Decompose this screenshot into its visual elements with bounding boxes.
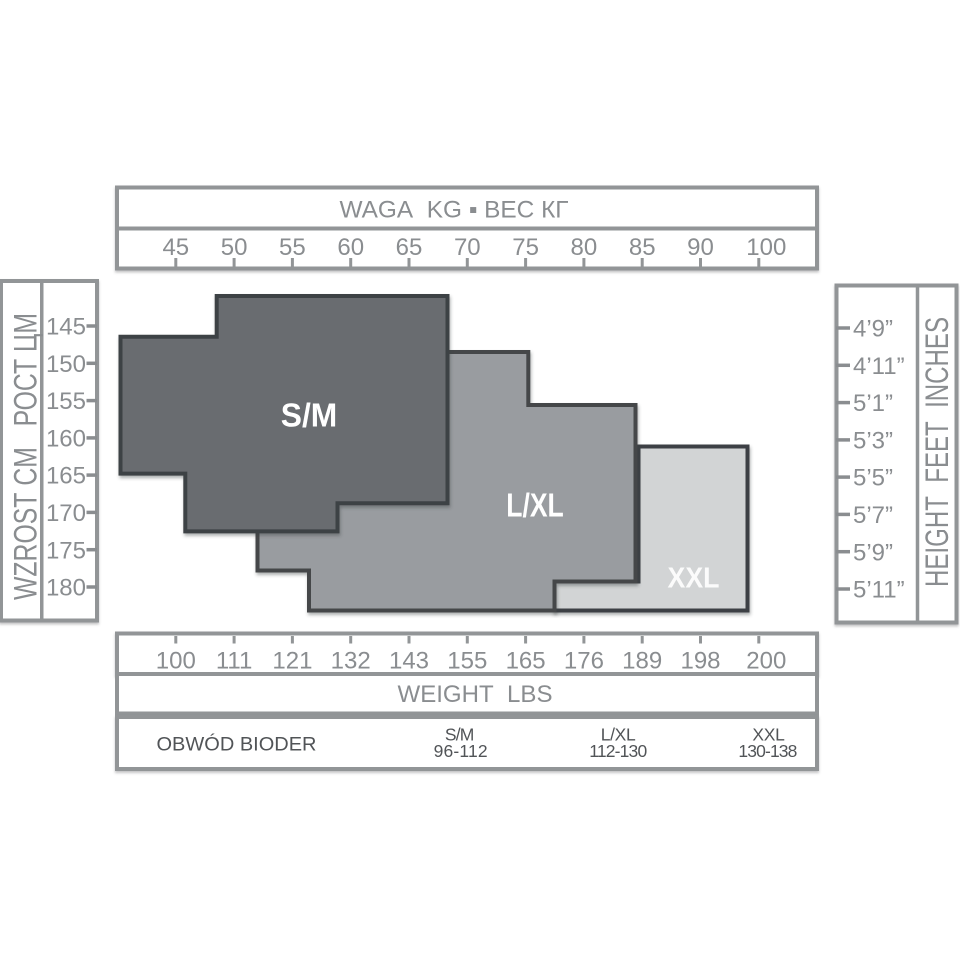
svg-text:5’11”: 5’11” bbox=[853, 577, 905, 604]
svg-text:65: 65 bbox=[396, 234, 423, 261]
svg-text:90: 90 bbox=[687, 234, 714, 261]
svg-text:50: 50 bbox=[221, 234, 248, 261]
svg-text:L/XL: L/XL bbox=[506, 486, 564, 523]
svg-text:155: 155 bbox=[447, 648, 487, 675]
svg-text:70: 70 bbox=[454, 234, 481, 261]
svg-text:60: 60 bbox=[337, 234, 364, 261]
svg-text:165: 165 bbox=[506, 648, 546, 675]
svg-text:112-130: 112-130 bbox=[589, 741, 647, 761]
svg-text:132: 132 bbox=[331, 648, 371, 675]
svg-text:111: 111 bbox=[216, 648, 252, 675]
svg-text:100: 100 bbox=[156, 648, 196, 675]
svg-text:189: 189 bbox=[622, 648, 662, 675]
svg-text:S/M: S/M bbox=[281, 397, 338, 434]
svg-text:5’1”: 5’1” bbox=[853, 390, 893, 417]
svg-text:4’9”: 4’9” bbox=[853, 316, 893, 343]
svg-text:OBWÓD BIODER: OBWÓD BIODER bbox=[157, 732, 317, 755]
svg-text:198: 198 bbox=[680, 648, 720, 675]
svg-text:100: 100 bbox=[746, 234, 786, 261]
svg-text:5’9”: 5’9” bbox=[853, 539, 893, 566]
svg-text:150: 150 bbox=[46, 351, 86, 378]
svg-text:160: 160 bbox=[46, 426, 86, 453]
svg-text:55: 55 bbox=[279, 234, 306, 261]
svg-text:WAGA KG ▪ ВЕС КГ: WAGA KG ▪ ВЕС КГ bbox=[340, 196, 569, 223]
svg-text:143: 143 bbox=[389, 648, 429, 675]
svg-text:200: 200 bbox=[746, 648, 786, 675]
svg-text:75: 75 bbox=[512, 234, 539, 261]
svg-text:155: 155 bbox=[46, 388, 86, 415]
svg-text:5’5”: 5’5” bbox=[853, 465, 893, 492]
svg-text:85: 85 bbox=[629, 234, 656, 261]
svg-text:180: 180 bbox=[46, 575, 86, 602]
svg-text:170: 170 bbox=[46, 500, 86, 527]
svg-text:176: 176 bbox=[564, 648, 604, 675]
svg-text:145: 145 bbox=[46, 314, 86, 341]
svg-text:XXL: XXL bbox=[668, 563, 720, 595]
svg-text:45: 45 bbox=[162, 234, 189, 261]
svg-text:5’7”: 5’7” bbox=[853, 502, 893, 529]
svg-text:HEIGHT FEET INCHES: HEIGHT FEET INCHES bbox=[919, 317, 955, 587]
svg-text:WZROST CM РОСТ ЦМ: WZROST CM РОСТ ЦМ bbox=[8, 313, 44, 600]
svg-text:4’11”: 4’11” bbox=[853, 353, 905, 380]
svg-text:121: 121 bbox=[272, 648, 312, 675]
svg-text:96-112: 96-112 bbox=[434, 741, 488, 761]
svg-text:5’3”: 5’3” bbox=[853, 428, 893, 455]
svg-text:80: 80 bbox=[571, 234, 598, 261]
svg-text:130-138: 130-138 bbox=[738, 741, 797, 761]
svg-text:165: 165 bbox=[46, 463, 86, 490]
svg-text:WEIGHT LBS: WEIGHT LBS bbox=[398, 681, 553, 708]
svg-text:175: 175 bbox=[46, 537, 86, 564]
